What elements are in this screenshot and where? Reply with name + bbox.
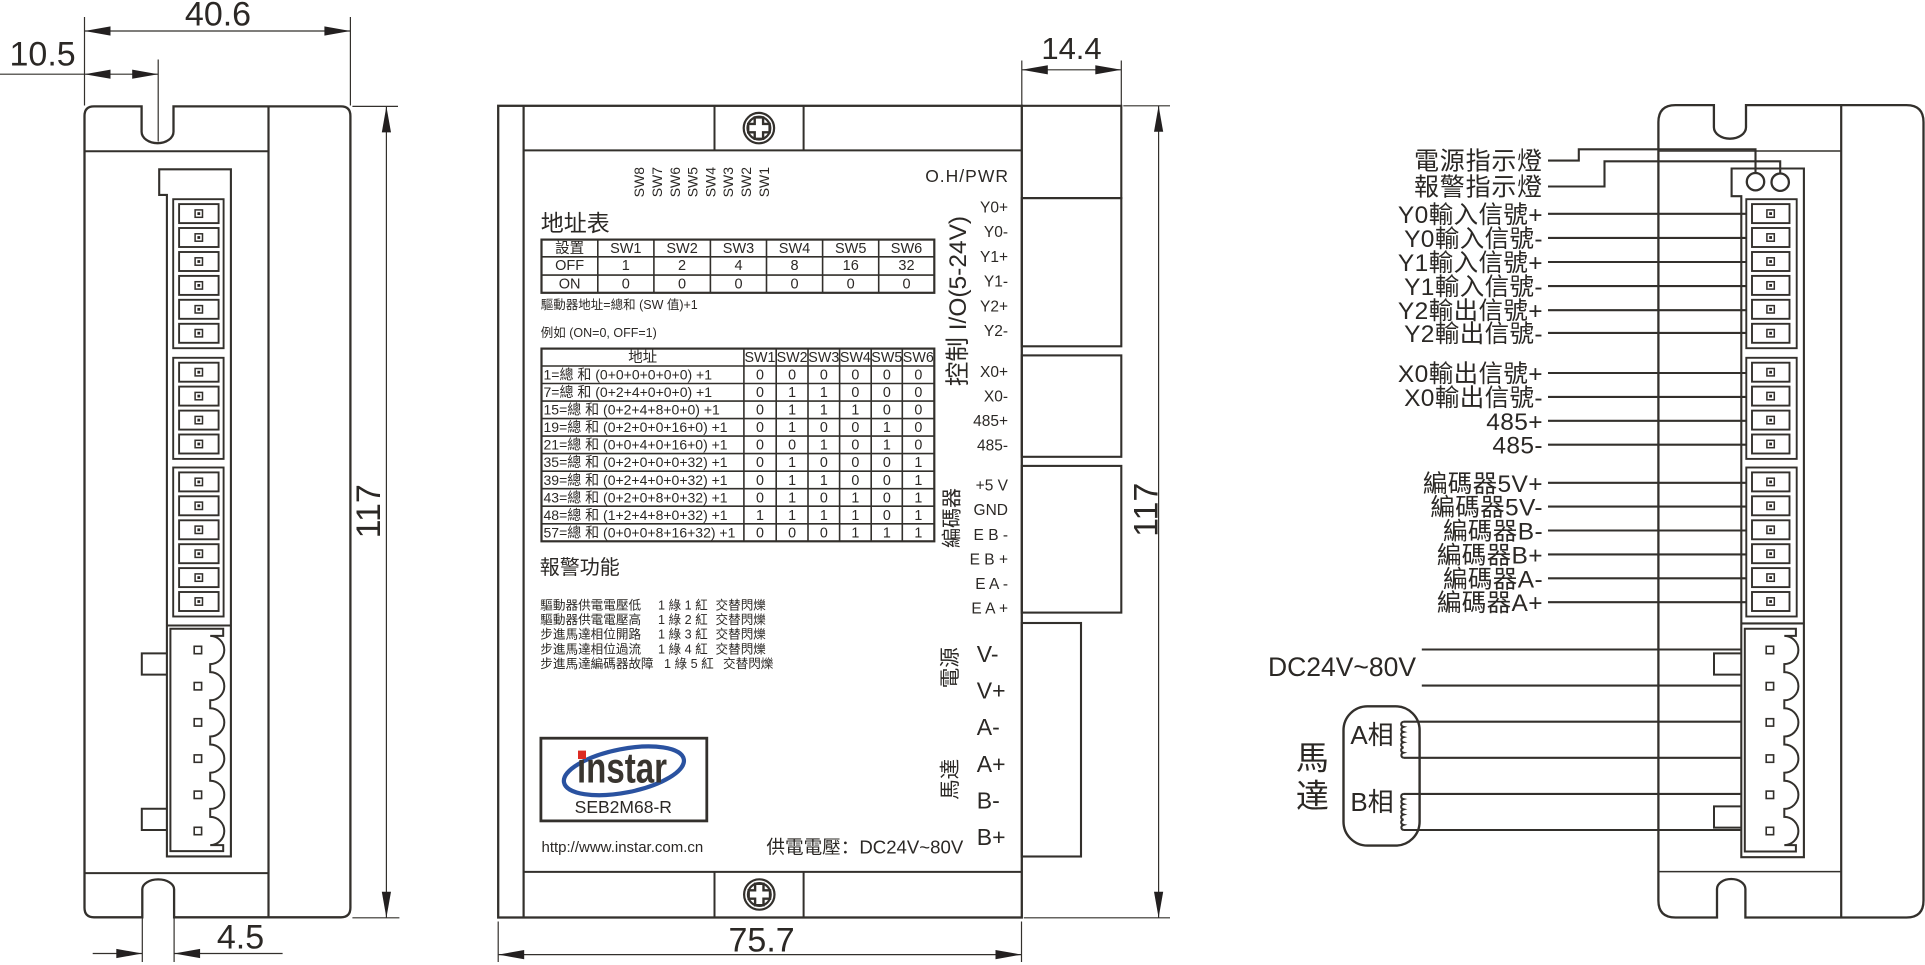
svg-text:0: 0 xyxy=(756,368,764,384)
svg-text:57=總 和 (0+0+0+8+16+32) +1: 57=總 和 (0+0+0+8+16+32) +1 xyxy=(544,524,736,540)
svg-text:0: 0 xyxy=(756,420,764,436)
svg-text:E A +: E A + xyxy=(971,601,1008,618)
svg-text:4.5: 4.5 xyxy=(217,919,264,957)
svg-text:SW8: SW8 xyxy=(631,167,647,198)
svg-text:+5 V: +5 V xyxy=(976,478,1009,495)
svg-text:0: 0 xyxy=(820,525,828,541)
svg-text:編碼器B+: 編碼器B+ xyxy=(1437,541,1543,569)
svg-text:8: 8 xyxy=(790,258,798,274)
svg-text:0: 0 xyxy=(820,368,828,384)
svg-text:1: 1 xyxy=(820,473,828,489)
svg-text:0: 0 xyxy=(851,420,859,436)
svg-text:1: 1 xyxy=(883,420,891,436)
svg-text:B+: B+ xyxy=(977,824,1006,850)
svg-text:1: 1 xyxy=(788,385,796,401)
svg-text:報警功能: 報警功能 xyxy=(540,556,620,579)
svg-text:編碼器5V+: 編碼器5V+ xyxy=(1423,470,1543,498)
svg-text:http://www.instar.com.cn: http://www.instar.com.cn xyxy=(542,839,704,856)
svg-text:電源指示燈: 電源指示燈 xyxy=(1414,148,1543,176)
svg-text:75.7: 75.7 xyxy=(729,922,795,960)
svg-text:485-: 485- xyxy=(1492,433,1543,460)
svg-text:Y2-: Y2- xyxy=(984,323,1008,340)
svg-text:SW6: SW6 xyxy=(667,167,683,198)
svg-text:15=總 和 (0+2+4+8+0+0) +1: 15=總 和 (0+2+4+8+0+0) +1 xyxy=(544,402,721,418)
svg-text:0: 0 xyxy=(914,368,922,384)
svg-text:0: 0 xyxy=(847,277,855,293)
svg-text:SW1: SW1 xyxy=(610,241,641,257)
svg-text:X0輸出信號-: X0輸出信號- xyxy=(1404,384,1543,412)
svg-text:485-: 485- xyxy=(977,437,1008,454)
svg-text:編碼器5V-: 編碼器5V- xyxy=(1430,494,1543,522)
svg-text:0: 0 xyxy=(756,385,764,401)
svg-text:32: 32 xyxy=(898,258,914,274)
svg-text:43=總 和 (0+2+0+8+0+32) +1: 43=總 和 (0+2+0+8+0+32) +1 xyxy=(544,489,728,505)
svg-text:SW1: SW1 xyxy=(745,350,776,366)
svg-text:X0輸出信號+: X0輸出信號+ xyxy=(1398,360,1543,388)
svg-text:0: 0 xyxy=(883,455,891,471)
svg-text:0: 0 xyxy=(790,277,798,293)
svg-text:0: 0 xyxy=(883,473,891,489)
svg-text:步進馬達編碼器故障: 步進馬達編碼器故障 xyxy=(540,656,654,671)
svg-text:1: 1 xyxy=(788,455,796,471)
svg-text:1: 1 xyxy=(851,403,859,419)
svg-text:步進馬達相位開路: 步進馬達相位開路 xyxy=(540,627,641,642)
svg-text:報警指示燈: 報警指示燈 xyxy=(1414,174,1543,202)
svg-text:10.5: 10.5 xyxy=(10,36,76,74)
svg-text:1: 1 xyxy=(820,438,828,454)
svg-text:X0-: X0- xyxy=(984,388,1008,405)
svg-text:0: 0 xyxy=(756,490,764,506)
svg-text:1 綠 5 紅: 1 綠 5 紅 xyxy=(664,657,714,671)
svg-text:SW3: SW3 xyxy=(723,241,754,257)
svg-text:OFF: OFF xyxy=(555,258,584,274)
svg-text:0: 0 xyxy=(756,455,764,471)
svg-text:達: 達 xyxy=(1296,777,1329,814)
svg-text:Y1輸入信號+: Y1輸入信號+ xyxy=(1398,249,1543,277)
svg-text:SW4: SW4 xyxy=(840,350,871,366)
svg-text:1: 1 xyxy=(788,473,796,489)
svg-text:0: 0 xyxy=(851,385,859,401)
svg-text:instar: instar xyxy=(577,744,667,792)
svg-text:0: 0 xyxy=(678,277,686,293)
svg-text:0: 0 xyxy=(914,385,922,401)
svg-text:交替閃爍: 交替閃爍 xyxy=(716,598,767,613)
svg-text:1 綠 2 紅: 1 綠 2 紅 xyxy=(658,613,708,627)
svg-text:1: 1 xyxy=(851,525,859,541)
svg-text:SW5: SW5 xyxy=(835,241,866,257)
svg-text:16: 16 xyxy=(843,258,859,274)
svg-text:交替閃爍: 交替閃爍 xyxy=(716,641,767,656)
svg-text:19=總 和 (0+2+0+0+16+0) +1: 19=總 和 (0+2+0+0+16+0) +1 xyxy=(544,419,728,435)
svg-text:1: 1 xyxy=(914,473,922,489)
svg-text:ON: ON xyxy=(559,277,581,293)
svg-text:驅動器供電電壓低: 驅動器供電電壓低 xyxy=(540,599,641,613)
svg-text:0: 0 xyxy=(820,420,828,436)
svg-text:SW2: SW2 xyxy=(777,350,808,366)
svg-text:1: 1 xyxy=(788,490,796,506)
svg-text:例如 (ON=0, OFF=1): 例如 (ON=0, OFF=1) xyxy=(541,325,657,340)
svg-text:1: 1 xyxy=(788,403,796,419)
svg-text:21=總 和 (0+0+4+0+16+0) +1: 21=總 和 (0+0+4+0+16+0) +1 xyxy=(544,437,728,453)
svg-text:0: 0 xyxy=(914,438,922,454)
svg-text:0: 0 xyxy=(851,368,859,384)
svg-text:SEB2M68-R: SEB2M68-R xyxy=(575,797,672,817)
svg-text:電源: 電源 xyxy=(939,647,962,688)
svg-text:39=總 和 (0+2+4+0+0+32) +1: 39=總 和 (0+2+4+0+0+32) +1 xyxy=(544,472,728,488)
svg-text:Y2+: Y2+ xyxy=(980,298,1008,315)
svg-text:0: 0 xyxy=(756,438,764,454)
svg-text:0: 0 xyxy=(756,473,764,489)
svg-text:SW5: SW5 xyxy=(685,167,701,198)
svg-text:0: 0 xyxy=(788,525,796,541)
svg-text:1: 1 xyxy=(622,258,630,274)
svg-text:B-: B- xyxy=(977,787,1000,813)
svg-text:14.4: 14.4 xyxy=(1041,31,1101,66)
svg-text:馬達: 馬達 xyxy=(939,759,962,800)
svg-text:1: 1 xyxy=(756,508,764,524)
svg-text:0: 0 xyxy=(851,438,859,454)
svg-text:117: 117 xyxy=(350,484,388,538)
svg-text:40.6: 40.6 xyxy=(185,0,251,34)
svg-text:地址: 地址 xyxy=(628,349,657,366)
svg-text:編碼器B-: 編碼器B- xyxy=(1443,518,1543,546)
svg-text:0: 0 xyxy=(788,438,796,454)
svg-text:0: 0 xyxy=(788,368,796,384)
svg-text:SW4: SW4 xyxy=(779,241,810,257)
svg-text:步進馬達相位過流: 步進馬達相位過流 xyxy=(540,642,641,656)
svg-text:編碼器A+: 編碼器A+ xyxy=(1437,589,1543,617)
svg-text:交替閃爍: 交替閃爍 xyxy=(716,612,767,627)
svg-text:0: 0 xyxy=(914,403,922,419)
svg-text:117: 117 xyxy=(1127,483,1165,537)
svg-text:1: 1 xyxy=(883,525,891,541)
svg-text:1: 1 xyxy=(788,508,796,524)
svg-text:E A -: E A - xyxy=(975,576,1008,593)
svg-text:交替閃爍: 交替閃爍 xyxy=(723,656,774,671)
svg-text:V-: V- xyxy=(977,641,999,667)
svg-text:0: 0 xyxy=(851,473,859,489)
svg-text:35=總 和 (0+2+0+0+0+32) +1: 35=總 和 (0+2+0+0+0+32) +1 xyxy=(544,454,728,470)
svg-text:驅動器地址=總和 (SW 值)+1: 驅動器地址=總和 (SW 值)+1 xyxy=(541,297,698,312)
svg-text:1 綠 3 紅: 1 綠 3 紅 xyxy=(658,628,708,642)
svg-text:0: 0 xyxy=(883,490,891,506)
svg-text:SW4: SW4 xyxy=(702,167,718,198)
svg-text:1 綠 1 紅: 1 綠 1 紅 xyxy=(658,599,708,613)
svg-text:Y0輸入信號-: Y0輸入信號- xyxy=(1404,225,1543,253)
svg-text:SW2: SW2 xyxy=(666,241,697,257)
svg-text:1: 1 xyxy=(914,455,922,471)
svg-text:O.H/PWR: O.H/PWR xyxy=(925,166,1009,186)
svg-text:7=總 和 (0+2+4+0+0+0) +1: 7=總 和 (0+2+4+0+0+0) +1 xyxy=(544,384,713,400)
svg-text:0: 0 xyxy=(851,455,859,471)
svg-text:供電電壓：DC24V~80V: 供電電壓：DC24V~80V xyxy=(766,837,963,858)
svg-text:0: 0 xyxy=(820,455,828,471)
svg-text:0: 0 xyxy=(734,277,742,293)
svg-text:X0+: X0+ xyxy=(980,364,1008,381)
svg-text:1: 1 xyxy=(820,508,828,524)
svg-text:1: 1 xyxy=(914,525,922,541)
svg-text:1: 1 xyxy=(820,385,828,401)
svg-text:SW3: SW3 xyxy=(720,167,736,198)
svg-text:A+: A+ xyxy=(977,751,1006,777)
svg-text:1: 1 xyxy=(883,438,891,454)
svg-text:驅動器供電電壓高: 驅動器供電電壓高 xyxy=(540,612,641,627)
svg-text:Y0-: Y0- xyxy=(984,224,1008,241)
svg-text:Y0+: Y0+ xyxy=(980,200,1008,217)
svg-text:GND: GND xyxy=(974,502,1008,519)
svg-text:1 綠 4 紅: 1 綠 4 紅 xyxy=(658,642,708,656)
svg-text:A-: A- xyxy=(977,714,1000,740)
svg-text:0: 0 xyxy=(883,368,891,384)
svg-text:編碼器: 編碼器 xyxy=(941,488,964,548)
svg-text:Y1+: Y1+ xyxy=(980,249,1008,266)
svg-text:SW1: SW1 xyxy=(756,167,772,198)
svg-text:SW2: SW2 xyxy=(738,167,754,198)
svg-text:E B +: E B + xyxy=(970,551,1008,568)
svg-text:SW3: SW3 xyxy=(808,350,839,366)
svg-text:0: 0 xyxy=(883,385,891,401)
svg-text:Y1輸入信號-: Y1輸入信號- xyxy=(1404,273,1543,301)
svg-text:1=總 和 (0+0+0+0+0+0) +1: 1=總 和 (0+0+0+0+0+0) +1 xyxy=(544,367,713,383)
svg-text:1: 1 xyxy=(851,490,859,506)
svg-text:0: 0 xyxy=(914,420,922,436)
svg-text:0: 0 xyxy=(883,508,891,524)
svg-text:編碼器A-: 編碼器A- xyxy=(1443,565,1543,593)
svg-text:SW5: SW5 xyxy=(871,350,902,366)
svg-text:1: 1 xyxy=(914,508,922,524)
svg-text:0: 0 xyxy=(883,403,891,419)
svg-text:1: 1 xyxy=(914,490,922,506)
svg-text:1: 1 xyxy=(820,403,828,419)
svg-text:0: 0 xyxy=(902,277,910,293)
svg-text:0: 0 xyxy=(820,490,828,506)
svg-text:48=總 和 (1+2+4+8+0+32) +1: 48=總 和 (1+2+4+8+0+32) +1 xyxy=(544,507,728,523)
svg-text:0: 0 xyxy=(756,525,764,541)
svg-text:E B -: E B - xyxy=(974,527,1008,544)
svg-text:SW6: SW6 xyxy=(903,350,934,366)
svg-text:0: 0 xyxy=(622,277,630,293)
svg-text:A相: A相 xyxy=(1350,720,1393,750)
svg-text:交替閃爍: 交替閃爍 xyxy=(716,627,767,642)
svg-text:設置: 設置 xyxy=(555,240,584,257)
svg-text:馬: 馬 xyxy=(1296,739,1329,776)
svg-text:SW7: SW7 xyxy=(649,167,665,198)
svg-text:SW6: SW6 xyxy=(891,241,922,257)
svg-text:485+: 485+ xyxy=(973,413,1008,430)
svg-text:控制 I/O(5-24V): 控制 I/O(5-24V) xyxy=(944,216,972,386)
svg-text:1: 1 xyxy=(851,508,859,524)
svg-text:DC24V~80V: DC24V~80V xyxy=(1268,652,1416,682)
svg-text:地址表: 地址表 xyxy=(541,210,610,236)
svg-text:Y1-: Y1- xyxy=(984,274,1008,291)
svg-text:V+: V+ xyxy=(977,678,1006,704)
svg-text:Y0輸入信號+: Y0輸入信號+ xyxy=(1398,201,1543,229)
svg-text:B相: B相 xyxy=(1350,787,1393,817)
svg-text:Y2輸出信號-: Y2輸出信號- xyxy=(1404,320,1543,348)
svg-text:1: 1 xyxy=(788,420,796,436)
svg-text:0: 0 xyxy=(756,403,764,419)
svg-text:2: 2 xyxy=(678,258,686,274)
svg-text:4: 4 xyxy=(734,258,742,274)
